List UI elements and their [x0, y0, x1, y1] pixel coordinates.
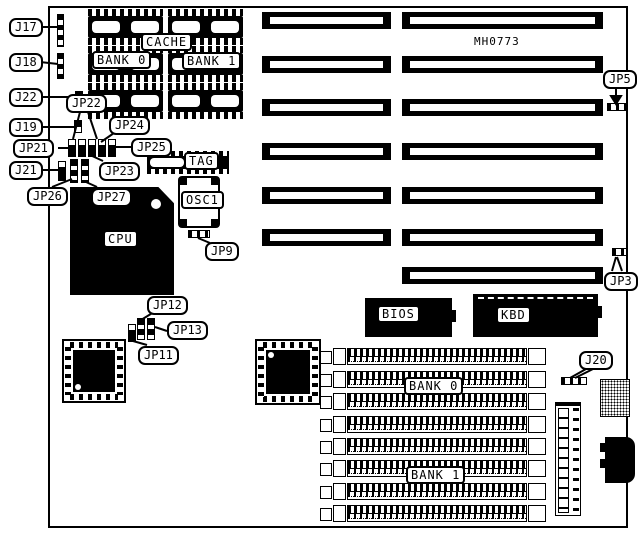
callout-jp24: JP24 [109, 116, 150, 135]
motherboard-jumper-diagram: CACHE BANK 0 BANK 1 TAG OSC1 CPU MH0773 … [0, 0, 643, 536]
callout-jp22: JP22 [66, 94, 107, 113]
callout-j17: J17 [9, 18, 43, 37]
cpu-label: CPU [103, 230, 138, 248]
callout-jp3: JP3 [604, 272, 638, 291]
callout-jp23: JP23 [99, 162, 140, 181]
callout-jp13: JP13 [167, 321, 208, 340]
tag-label: TAG [184, 152, 219, 170]
simm-bank0-label: BANK 0 [404, 377, 463, 395]
callout-jp25: JP25 [131, 138, 172, 157]
bios-label: BIOS [377, 305, 420, 323]
callout-j21: J21 [9, 161, 43, 180]
callout-j19: J19 [9, 118, 43, 137]
kbd-label: KBD [496, 306, 531, 324]
callout-j22: J22 [9, 88, 43, 107]
callout-pointer-lines [0, 0, 643, 536]
simm-bank1-label: BANK 1 [406, 466, 465, 484]
callout-jp27: JP27 [91, 188, 132, 207]
callout-jp11: JP11 [138, 346, 179, 365]
osc1-label: OSC1 [181, 191, 224, 209]
cache-bank0-label: BANK 0 [92, 51, 151, 69]
callout-jp26: JP26 [27, 187, 68, 206]
callout-j18: J18 [9, 53, 43, 72]
cache-label: CACHE [141, 33, 192, 51]
cache-bank1-label: BANK 1 [182, 52, 241, 70]
callout-jp12: JP12 [147, 296, 188, 315]
board-id-text: MH0773 [474, 35, 520, 48]
callout-jp5: JP5 [603, 70, 637, 89]
callout-j20: J20 [579, 351, 613, 370]
callout-jp21: JP21 [13, 139, 54, 158]
callout-jp9: JP9 [205, 242, 239, 261]
